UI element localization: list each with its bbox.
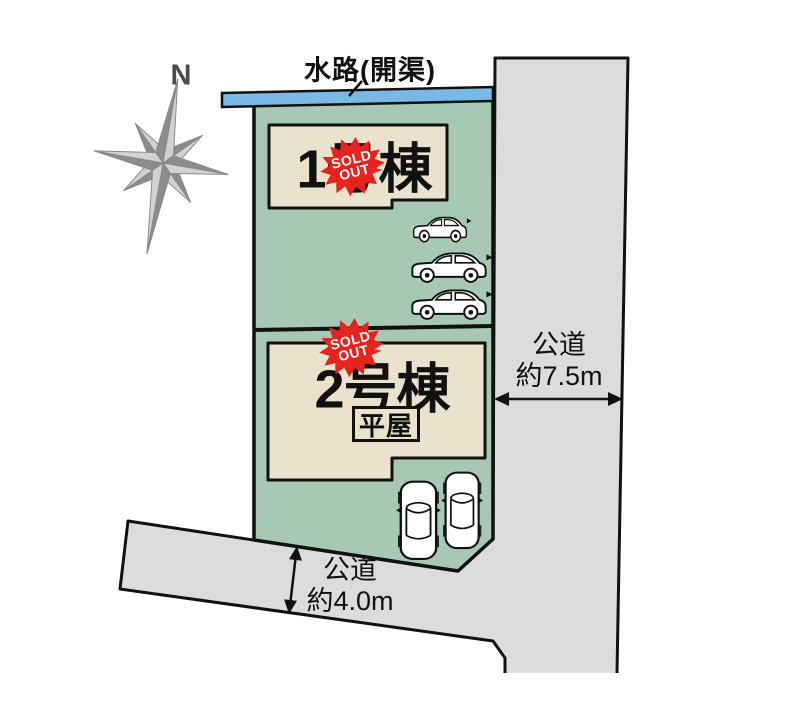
bottom-road-name: 公道 [306,555,393,586]
right-road-label: 公道 約7.5m [515,330,602,392]
compass-rose [78,67,243,265]
right-road-width: 約7.5m [515,361,602,392]
bottom-road-label: 公道 約4.0m [306,555,393,617]
plot-map: N 水路(開渠) 1号棟 SOLD OUT 2号棟 SOLD OUT 平屋 公道… [0,0,800,704]
car-top-1 [396,482,441,559]
right-road-name: 公道 [515,330,602,361]
single-story-label: 平屋 [359,406,413,443]
north-label: N [171,60,192,93]
single-story-label-box: 平屋 [352,406,420,442]
sold-out-badge-lot2: SOLD OUT [317,312,387,382]
waterway-label: 水路(開渠) [304,49,436,88]
sold-out-badge-lot1: SOLD OUT [318,131,388,201]
car-top-2 [441,473,483,548]
bottom-road-width: 約4.0m [306,586,393,617]
